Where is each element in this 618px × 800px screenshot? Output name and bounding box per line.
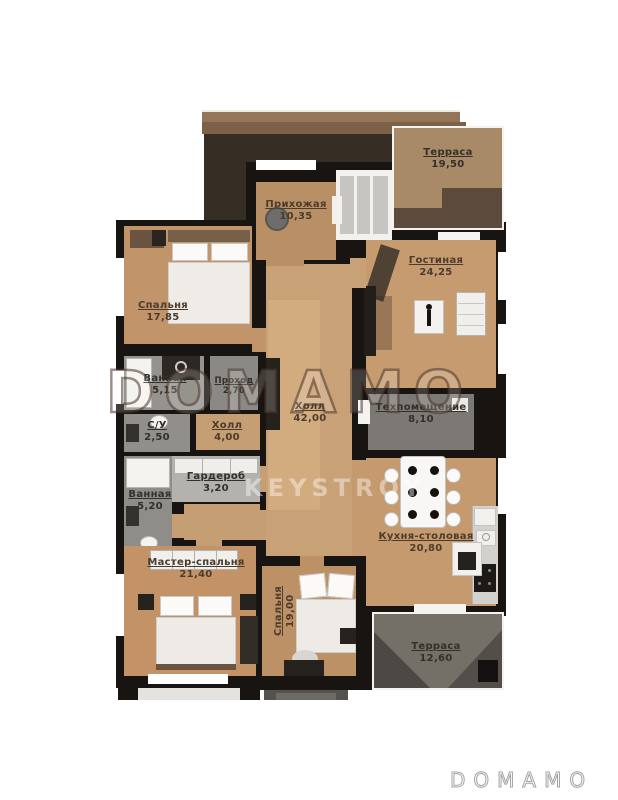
living-window — [498, 252, 508, 300]
room-area: 12,60 — [376, 653, 496, 665]
nightstand — [340, 628, 356, 644]
pillow — [327, 573, 355, 599]
bed-headboard — [168, 230, 250, 242]
keystroy-watermark: KEYSTROY — [244, 474, 425, 502]
bathroom2-door-gap — [172, 514, 184, 538]
room-label-living: Гостиная 24,25 — [376, 255, 496, 279]
floor-plan-canvas: Терраса 19,50 Прихожая 10,35 Гостиная 24… — [0, 0, 618, 800]
room-label-bedroom-1: Спальня 17,85 — [103, 300, 223, 324]
domamo-footer-logo: DOMAMO — [450, 768, 593, 792]
pillow — [299, 573, 327, 600]
room-area: 19,50 — [388, 159, 508, 171]
kitchen-window — [498, 458, 508, 514]
bed-footboard — [156, 664, 236, 670]
chair — [446, 512, 461, 527]
bedroom2-door-gap — [300, 556, 324, 568]
master-side-wardrobe — [240, 616, 258, 664]
room-label-entry-hall: Прихожая 10,35 — [236, 199, 356, 223]
room-name: Прихожая — [236, 199, 356, 211]
pillow — [211, 243, 248, 261]
pillow — [160, 596, 194, 616]
room-label-terrace-top: Терраса 19,50 — [388, 147, 508, 171]
room-name: Ванная — [90, 489, 210, 501]
master-window-left — [112, 574, 124, 636]
room-label-kitchen: Кухня-столовая 20,80 — [366, 531, 486, 555]
porch-post — [118, 678, 138, 700]
chair — [384, 512, 399, 527]
tv-unit — [364, 286, 376, 356]
burner-icon — [478, 582, 481, 585]
master-window-bottom — [148, 674, 228, 684]
room-area: 10,35 — [236, 211, 356, 223]
porch-step-line — [370, 176, 373, 234]
entry-hall-opening — [266, 252, 304, 266]
nightstand — [240, 594, 256, 610]
room-area: 24,25 — [376, 267, 496, 279]
flame-icon — [427, 310, 431, 326]
room-area: 17,85 — [103, 312, 223, 324]
room-area: 19,00 — [285, 561, 297, 661]
room-name: Спальня — [103, 300, 223, 312]
bed-blanket — [156, 617, 236, 665]
room-label-bedroom-2: Спальня 19,00 — [273, 561, 297, 661]
roof-edge-1 — [202, 110, 460, 122]
room-label-terrace-bottom: Терраса 12,60 — [376, 641, 496, 665]
cabinet-shelf-line — [458, 325, 484, 326]
cabinet-shelf-line — [458, 314, 484, 315]
room-name: Кухня-столовая — [366, 531, 486, 543]
plate — [430, 466, 439, 475]
plate — [430, 488, 439, 497]
porch-middle-step — [276, 693, 336, 700]
plate — [408, 510, 417, 519]
nightstand — [152, 230, 166, 246]
burner-icon — [488, 582, 491, 585]
nightstand — [138, 594, 154, 610]
tv-shadow — [376, 296, 392, 350]
porch-post — [240, 678, 260, 700]
burner-icon — [488, 569, 491, 572]
pillow — [172, 243, 208, 261]
room-name: Терраса — [376, 641, 496, 653]
room-label-master-bedroom: Мастер-спальня 21,40 — [136, 557, 256, 581]
room-label-bathroom-2: Ванная 5,20 — [90, 489, 210, 513]
pillow — [198, 596, 232, 616]
room-name: Мастер-спальня — [136, 557, 256, 569]
room-name: Спальня — [273, 561, 285, 661]
entry-window-top — [256, 160, 316, 170]
chair — [446, 490, 461, 505]
fridge — [474, 508, 496, 526]
porch-left — [138, 688, 240, 700]
room-area: 20,80 — [366, 543, 486, 555]
room-name: Гостиная — [376, 255, 496, 267]
chair — [446, 468, 461, 483]
cabinet-shelf-line — [458, 303, 484, 304]
room-area: 5,20 — [90, 501, 210, 513]
bed-blanket — [296, 599, 356, 653]
room-area: 4,00 — [167, 432, 287, 444]
room-area: 21,40 — [136, 569, 256, 581]
room-terrace-top — [392, 126, 504, 230]
desk — [284, 660, 324, 676]
terrace-top-floor-step — [394, 188, 442, 208]
plate — [430, 510, 439, 519]
domamo-watermark: DOMAMO — [106, 358, 526, 426]
hall-living-opening — [350, 258, 366, 288]
room-name: Терраса — [388, 147, 508, 159]
